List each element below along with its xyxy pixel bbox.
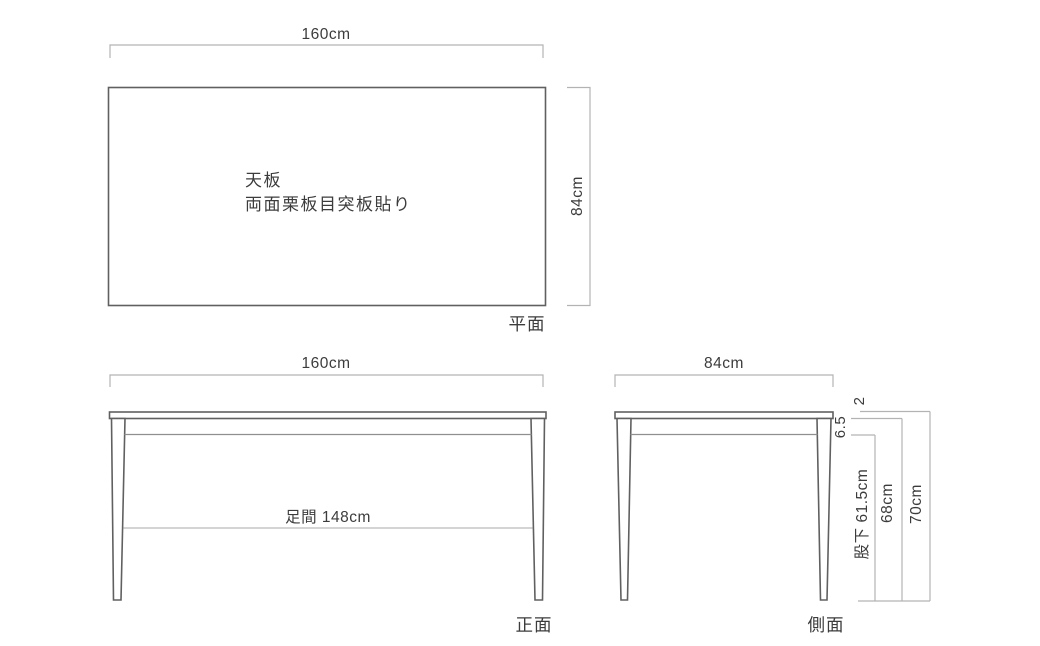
side-view-depth-dimension-line xyxy=(615,375,833,387)
height-under-top-label: 68cm xyxy=(879,483,896,523)
total-height-label: 70cm xyxy=(908,484,925,524)
front-view-label: 正面 xyxy=(516,615,553,635)
front-view-width-dimension-line xyxy=(110,375,543,387)
front-leg-span-label: 足間 148cm xyxy=(285,509,371,526)
side-view-depth-dimension-label: 84cm xyxy=(704,355,744,372)
top-view-label: 平面 xyxy=(509,314,546,334)
front-left-leg xyxy=(112,419,126,601)
leg-clearance-label: 股下 61.5cm xyxy=(853,469,871,560)
front-view-width-dimension-label: 160cm xyxy=(301,355,350,372)
side-view-label: 側面 xyxy=(808,615,845,635)
front-tabletop-slab xyxy=(110,412,547,419)
tabletop-note-line2: 両面栗板目突板貼り xyxy=(245,195,412,214)
front-view: 160cm 足間 148cm 正面 xyxy=(110,355,553,635)
top-view-width-dimension-label: 160cm xyxy=(301,26,350,43)
tabletop-note-line1: 天板 xyxy=(245,171,282,190)
drawing-svg: 160cm 天板 両面栗板目突板貼り 84cm 平面 160cm 足間 148c… xyxy=(0,0,1040,646)
top-view-width-dimension-line xyxy=(110,45,543,58)
top-view-depth-dimension-label: 84cm xyxy=(569,176,586,216)
side-right-leg xyxy=(817,419,831,601)
top-thickness-label: 2 xyxy=(851,397,868,406)
side-tabletop-slab xyxy=(615,412,833,419)
furniture-dimension-drawing: 160cm 天板 両面栗板目突板貼り 84cm 平面 160cm 足間 148c… xyxy=(0,0,1040,646)
front-right-leg xyxy=(531,419,545,601)
top-view: 160cm 天板 両面栗板目突板貼り 84cm 平面 xyxy=(109,26,591,334)
height-dimension-stack: 2 6.5 股下 61.5cm 68cm 70cm xyxy=(832,397,930,601)
side-left-leg xyxy=(617,419,631,601)
apron-height-label: 6.5 xyxy=(832,416,849,438)
side-view: 84cm 側面 xyxy=(615,355,845,635)
